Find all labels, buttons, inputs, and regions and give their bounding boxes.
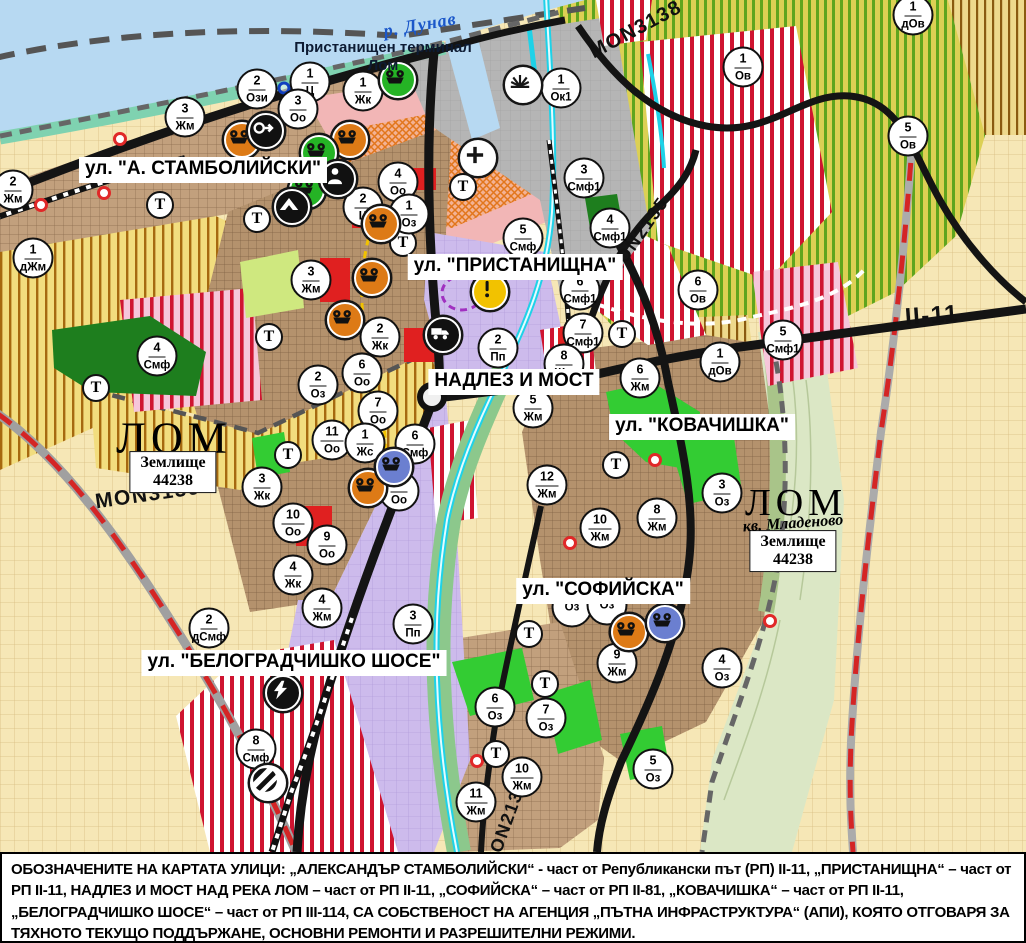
zone-marker-6-Жм: 6Жм bbox=[620, 358, 661, 399]
zone-code: дЖм bbox=[20, 262, 46, 274]
zone-number: 2 bbox=[310, 370, 327, 387]
red-dot-marker bbox=[763, 614, 777, 628]
transport-marker: Т bbox=[243, 205, 271, 233]
zone-code: Жм bbox=[538, 489, 557, 501]
zone-number: 4 bbox=[602, 213, 619, 230]
land-plot-label: Землище44238 bbox=[749, 530, 836, 572]
road-code-label: MON3138 bbox=[586, 0, 687, 64]
zone-number: 4 bbox=[390, 167, 407, 184]
zone-marker-2-Ози: 2Ози bbox=[237, 69, 278, 110]
zone-code: Жм bbox=[513, 781, 532, 793]
plot-number: 44238 bbox=[760, 551, 825, 569]
red-dot-marker bbox=[34, 198, 48, 212]
zone-number: 9 bbox=[609, 648, 626, 665]
zone-code: Ов bbox=[900, 140, 916, 152]
zone-code: Пп bbox=[490, 352, 505, 364]
zone-marker-3-Оз: 3Оз bbox=[702, 473, 743, 514]
zone-marker-1-Ок1: 1Ок1 bbox=[541, 68, 582, 109]
zone-number: 3 bbox=[254, 472, 271, 489]
zone-code: Жм bbox=[302, 284, 321, 296]
zone-number: 6 bbox=[690, 275, 707, 292]
mountain-icon bbox=[274, 189, 310, 225]
fan-icon bbox=[505, 67, 541, 103]
cross-icon bbox=[460, 140, 496, 176]
zone-marker-4-Смф1: 4Смф1 bbox=[590, 208, 631, 249]
zone-number: 8 bbox=[248, 734, 265, 751]
zone-number: 6 bbox=[354, 358, 371, 375]
zone-number: 4 bbox=[149, 341, 166, 358]
zone-code: Смф bbox=[144, 360, 171, 372]
street-label: ул. "КОВАЧИШКА" bbox=[609, 414, 795, 440]
zone-marker-3-Пп: 3Пп bbox=[393, 604, 434, 645]
zone-code: Смф bbox=[243, 753, 270, 765]
zone-code: Смф1 bbox=[567, 182, 600, 194]
red-dot-marker bbox=[113, 132, 127, 146]
rail-crossing-icon-glyph bbox=[252, 767, 278, 793]
arrow-icon bbox=[248, 113, 284, 149]
cross-icon-glyph bbox=[462, 142, 488, 168]
plot-number: 44238 bbox=[140, 472, 205, 490]
zone-number: 2 bbox=[490, 333, 507, 350]
zone-code: Оз bbox=[539, 722, 554, 734]
zone-number: 3 bbox=[405, 609, 422, 626]
zone-number: 4 bbox=[285, 560, 302, 577]
zone-code: Жк bbox=[285, 579, 301, 591]
factory-orange-icon-glyph bbox=[334, 124, 360, 150]
factory-orange-icon-glyph bbox=[352, 472, 378, 498]
zone-marker-5-Оз: 5Оз bbox=[633, 749, 674, 790]
red-dot-marker bbox=[97, 186, 111, 200]
zone-code: Оз bbox=[488, 711, 503, 723]
zone-marker-4-Жк: 4Жк bbox=[273, 555, 314, 596]
zone-marker-1-дОв: 1дОв bbox=[893, 0, 934, 36]
factory-blue-icon-glyph bbox=[378, 451, 404, 477]
zone-marker-2-Пп: 2Пп bbox=[478, 328, 519, 369]
factory-orange-icon bbox=[354, 260, 390, 296]
factory-orange-icon-glyph bbox=[356, 262, 382, 288]
zone-marker-8-Жм: 8Жм bbox=[637, 498, 678, 539]
zone-marker-2-Жм: 2Жм bbox=[0, 170, 34, 211]
zone-marker-4-Оз: 4Оз bbox=[702, 648, 743, 689]
red-dot-marker bbox=[648, 453, 662, 467]
zone-marker-1-Жк: 1Жк bbox=[343, 71, 384, 112]
zone-number: 11 bbox=[464, 787, 487, 804]
zone-code: Оо bbox=[324, 444, 340, 456]
lightning-icon-glyph bbox=[267, 677, 293, 703]
street-label: ул. "БЕЛОГРАДЧИШКО ШОСЕ" bbox=[142, 650, 447, 676]
zone-marker-8-Смф: 8Смф bbox=[236, 729, 277, 770]
zone-marker-3-Жм: 3Жм bbox=[165, 97, 206, 138]
factory-blue-icon bbox=[376, 449, 412, 485]
factory-orange-icon-glyph bbox=[365, 208, 391, 234]
zone-code: Ов bbox=[690, 294, 706, 306]
zone-code: Ок1 bbox=[550, 92, 571, 104]
zone-code: Оо bbox=[354, 377, 370, 389]
street-label: ул. "ПРИСТАНИЩНА" bbox=[408, 254, 623, 280]
zone-number: 3 bbox=[177, 102, 194, 119]
zone-number: 10 bbox=[510, 762, 534, 779]
zone-number: 1 bbox=[401, 199, 418, 216]
zone-code: Жм bbox=[591, 532, 610, 544]
zone-number: 12 bbox=[535, 470, 559, 487]
zone-number: 10 bbox=[281, 508, 305, 525]
zone-code: Жм bbox=[648, 522, 667, 534]
transport-marker: Т bbox=[515, 620, 543, 648]
road-code-label: II-11 bbox=[904, 300, 960, 332]
zone-code: Оо bbox=[319, 549, 335, 561]
zone-marker-5-Смф1: 5Смф1 bbox=[763, 320, 804, 361]
zone-marker-3-Жм: 3Жм bbox=[291, 260, 332, 301]
zone-code: Жс bbox=[357, 447, 374, 459]
zone-code: Смф1 bbox=[766, 344, 799, 356]
zone-marker-10-Жм: 10Жм bbox=[580, 508, 621, 549]
transport-marker: Т bbox=[255, 323, 283, 351]
zone-code: Пп bbox=[405, 628, 420, 640]
factory-orange-icon-glyph bbox=[329, 304, 355, 330]
red-dot-marker bbox=[563, 536, 577, 550]
zone-number: 2 bbox=[372, 322, 389, 339]
zone-code: дСмф bbox=[192, 632, 226, 644]
zone-code: Ов bbox=[735, 71, 751, 83]
zone-number: 1 bbox=[553, 73, 570, 90]
zone-number: 5 bbox=[900, 121, 917, 138]
zone-number: 8 bbox=[649, 503, 666, 520]
zone-code: Смф1 bbox=[563, 294, 596, 306]
zone-number: 4 bbox=[314, 593, 331, 610]
factory-orange-icon bbox=[611, 614, 647, 650]
zone-code: Ози bbox=[246, 93, 268, 105]
zone-marker-12-Жм: 12Жм bbox=[527, 465, 568, 506]
zone-code: Жк bbox=[355, 95, 371, 107]
zone-number: 1 bbox=[25, 243, 42, 260]
transport-marker: Т bbox=[146, 191, 174, 219]
land-plot-label: Землище44238 bbox=[129, 451, 216, 493]
zone-code: Жм bbox=[4, 194, 23, 206]
zone-number: 2 bbox=[355, 192, 372, 209]
street-label: НАДЛЕЗ И МОСТ bbox=[428, 369, 599, 395]
zone-marker-11-Жм: 11Жм bbox=[456, 782, 497, 823]
zone-number: 5 bbox=[525, 393, 542, 410]
port-terminal-label: Пристанищен терминал Лом bbox=[293, 39, 473, 75]
truck-icon-glyph bbox=[427, 319, 453, 345]
zone-code: дОв bbox=[901, 19, 924, 31]
zone-code: Оз bbox=[311, 389, 326, 401]
zone-number: 10 bbox=[588, 513, 612, 530]
zone-number: 1 bbox=[357, 428, 374, 445]
zone-number: 6 bbox=[487, 692, 504, 709]
zone-code: Жм bbox=[524, 412, 543, 424]
zone-code: Оз bbox=[646, 773, 661, 785]
zone-number: 3 bbox=[714, 478, 731, 495]
mountain-icon-glyph bbox=[276, 191, 302, 217]
zone-marker-3-Смф1: 3Смф1 bbox=[564, 158, 605, 199]
fan-icon-glyph bbox=[507, 69, 533, 95]
zone-number: 1 bbox=[735, 52, 752, 69]
zone-marker-1-дОв: 1дОв bbox=[700, 342, 741, 383]
zone-number: 1 bbox=[712, 347, 729, 364]
map-page: 2Жм1дЖм3Жм2Ози1Ц3Оо1Жк4Оо2Ц1Оз1Ок13Смф14… bbox=[0, 0, 1026, 943]
zone-marker-2-дСмф: 2дСмф bbox=[189, 608, 230, 649]
zone-marker-1-дЖм: 1дЖм bbox=[13, 238, 54, 279]
zone-number: 7 bbox=[370, 396, 387, 413]
zone-code: Оо bbox=[391, 495, 407, 507]
zone-marker-3-Жк: 3Жк bbox=[242, 467, 283, 508]
map-canvas: 2Жм1дЖм3Жм2Ози1Ц3Оо1Жк4Оо2Ц1Оз1Ок13Смф14… bbox=[0, 0, 1026, 852]
zone-number: 4 bbox=[714, 653, 731, 670]
zone-marker-4-Жм: 4Жм bbox=[302, 588, 343, 629]
zone-marker-10-Жм: 10Жм bbox=[502, 757, 543, 798]
zone-code: Оз bbox=[715, 497, 730, 509]
zone-code: Жм bbox=[608, 667, 627, 679]
marker-overlay: 2Жм1дЖм3Жм2Ози1Ц3Оо1Жк4Оо2Ц1Оз1Ок13Смф14… bbox=[0, 0, 1026, 852]
zone-number: 1 bbox=[905, 0, 922, 17]
zone-number: 7 bbox=[538, 703, 555, 720]
zone-number: 3 bbox=[290, 94, 307, 111]
zone-number: 7 bbox=[575, 318, 592, 335]
transport-marker: Т bbox=[449, 173, 477, 201]
legend-note-text: ОБОЗНАЧЕНИТЕ НА КАРТАТА УЛИЦИ: „АЛЕКСАНД… bbox=[11, 859, 1015, 943]
transport-marker: Т bbox=[602, 451, 630, 479]
zone-number: 3 bbox=[303, 265, 320, 282]
transport-marker: Т bbox=[531, 670, 559, 698]
zone-number: 2 bbox=[201, 613, 218, 630]
zone-code: Смф1 bbox=[593, 232, 626, 244]
factory-blue-icon bbox=[647, 605, 683, 641]
zone-code: Жк bbox=[254, 491, 270, 503]
arrow-icon-glyph bbox=[250, 115, 276, 141]
zone-number: 8 bbox=[556, 349, 573, 366]
zone-marker-7-Оз: 7Оз bbox=[526, 698, 567, 739]
zone-code: Оо bbox=[285, 527, 301, 539]
factory-orange-icon bbox=[363, 206, 399, 242]
zone-number: 3 bbox=[576, 163, 593, 180]
legend-note: ОБОЗНАЧЕНИТЕ НА КАРТАТА УЛИЦИ: „АЛЕКСАНД… bbox=[0, 852, 1026, 943]
factory-orange-icon bbox=[327, 302, 363, 338]
zone-number: 5 bbox=[515, 223, 532, 240]
zone-number: 2 bbox=[249, 74, 266, 91]
zone-code: Жк bbox=[372, 341, 388, 353]
zone-number: 11 bbox=[320, 425, 343, 442]
zone-number: 6 bbox=[632, 363, 649, 380]
transport-marker: Т bbox=[82, 374, 110, 402]
zone-code: Оо bbox=[290, 113, 306, 125]
zone-code: Оз bbox=[715, 672, 730, 684]
zone-code: Жм bbox=[631, 382, 650, 394]
zone-marker-3-Оо: 3Оо bbox=[278, 89, 319, 130]
street-label: ул. "А. СТАМБОЛИЙСКИ" bbox=[79, 157, 327, 183]
truck-icon bbox=[425, 317, 461, 353]
zone-marker-2-Жк: 2Жк bbox=[360, 317, 401, 358]
zone-code: Жм bbox=[176, 121, 195, 133]
zone-number: 6 bbox=[407, 429, 424, 446]
zone-marker-9-Оо: 9Оо bbox=[307, 525, 348, 566]
zone-code: Смф bbox=[510, 242, 537, 254]
street-label: ул. "СОФИЙСКА" bbox=[516, 578, 690, 604]
zone-marker-5-Смф: 5Смф bbox=[503, 218, 544, 259]
zone-number: 1 bbox=[355, 76, 372, 93]
zone-code: Жм bbox=[467, 806, 486, 818]
factory-orange-icon bbox=[332, 122, 368, 158]
factory-blue-icon-glyph bbox=[649, 607, 675, 633]
zone-marker-2-Оз: 2Оз bbox=[298, 365, 339, 406]
transport-marker: Т bbox=[274, 441, 302, 469]
lightning-icon bbox=[265, 675, 301, 711]
rail-crossing-icon bbox=[250, 765, 286, 801]
zone-marker-1-Ов: 1Ов bbox=[723, 47, 764, 88]
zone-marker-6-Ов: 6Ов bbox=[678, 270, 719, 311]
plot-word: Землище bbox=[760, 533, 825, 551]
plot-word: Землище bbox=[140, 454, 205, 472]
factory-orange-icon-glyph bbox=[613, 616, 639, 642]
zone-code: Жм bbox=[313, 612, 332, 624]
transport-marker: Т bbox=[608, 320, 636, 348]
zone-code: Оз bbox=[402, 218, 417, 230]
zone-number: 2 bbox=[5, 175, 22, 192]
zone-marker-6-Оз: 6Оз bbox=[475, 687, 516, 728]
zone-marker-5-Ов: 5Ов bbox=[888, 116, 929, 157]
zone-number: 9 bbox=[319, 530, 336, 547]
zone-marker-6-Оо: 6Оо bbox=[342, 353, 383, 394]
zone-number: 5 bbox=[775, 325, 792, 342]
zone-marker-4-Смф: 4Смф bbox=[137, 336, 178, 377]
zone-code: дОв bbox=[708, 366, 731, 378]
zone-number: 5 bbox=[645, 754, 662, 771]
